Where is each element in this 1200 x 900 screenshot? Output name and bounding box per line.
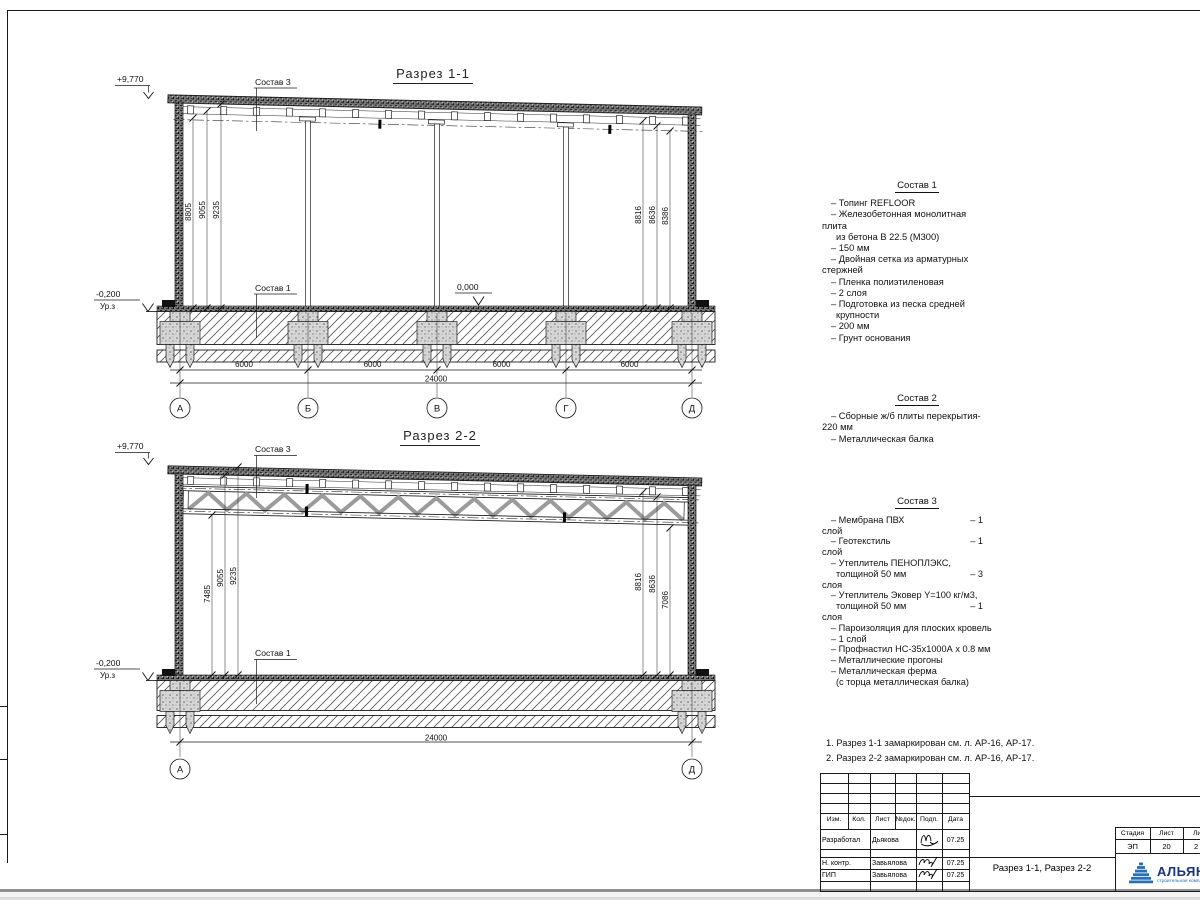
composition-2: Состав 2 – Сборные ж/б плиты перекрытия-…	[822, 393, 1018, 445]
drawing-sheet: 8805 9055 9235 8816 8636 8386 Состав 3 С…	[0, 0, 1200, 900]
composition-line: слоя	[822, 580, 1018, 591]
wall-right	[688, 485, 696, 675]
axis-label: А	[177, 765, 184, 776]
tb-doc-title: Разрез 1-1, Разрез 2-2	[969, 863, 1115, 874]
axis-label: Б	[305, 404, 311, 415]
composition-line: – Пленка полиэтиленовая	[822, 277, 1018, 288]
composition-line: стержней	[822, 265, 1018, 276]
alliance-logo-text: АЛЬЯНС	[1157, 864, 1200, 879]
tb-role: Н. контр.	[822, 860, 851, 867]
dim-label: 9235	[212, 201, 221, 219]
beam-splice-mark	[378, 120, 381, 129]
elevation-ground: -0,200	[96, 289, 121, 299]
tb-sheet-value: 20	[1150, 842, 1183, 851]
section-2-2-title: Разрез 2-2	[390, 428, 490, 443]
composition-line: крупности	[822, 310, 1018, 321]
elevation-zero: 0,000	[457, 282, 479, 292]
note-line: 2. Разрез 2-2 замаркирован см. л. АР-16,…	[826, 751, 1034, 766]
dim-total-label: 24000	[425, 734, 448, 743]
elevation-top: +9,770	[117, 441, 144, 451]
composition-3: Состав 3 – Мембрана ПВХ– 1слой– Геотекст…	[822, 497, 1018, 688]
dim-label: 8386	[661, 207, 670, 225]
composition-line: – Профнастил НС-35х1000А х 0.8 мм	[822, 644, 1018, 655]
column	[564, 127, 569, 307]
composition-line: – Металлическая балка	[822, 434, 1018, 445]
composition-line: (с торца металлическая балка)	[822, 677, 1018, 688]
composition-line: слой	[822, 547, 1018, 558]
elevation-ground: -0,200	[96, 658, 121, 668]
tb-header-list: Лист	[870, 816, 895, 823]
axis-label: Д	[689, 404, 696, 415]
elevation-top: +9,770	[117, 74, 144, 84]
signature	[917, 829, 942, 848]
composition-line: – Железобетонная монолитная	[822, 209, 1018, 220]
soil-band	[157, 716, 715, 728]
wall-base	[162, 300, 175, 307]
truss-splice-mark	[305, 506, 308, 516]
dim-label: 8816	[634, 206, 643, 224]
axis-markers: А Б В Г Д	[170, 398, 702, 418]
dim-label: 6000	[364, 360, 382, 369]
tb-header-data: Дата	[942, 816, 969, 823]
composition-line: – 200 мм	[822, 321, 1018, 332]
composition-line: – Подготовка из песка средней	[822, 299, 1018, 310]
axis-label: Г	[563, 404, 568, 415]
axis-label: А	[177, 404, 184, 415]
wall-base	[696, 669, 709, 676]
tb-name: Завьялова	[872, 860, 907, 867]
composition-1-lines: – Топинг REFLOOR– Железобетонная монолит…	[822, 198, 1018, 344]
wall-base	[162, 669, 175, 676]
composition-line: – Мембрана ПВХ– 1	[822, 515, 983, 526]
composition-line: – Утеплитель ПЕНОПЛЭКС,	[822, 558, 1018, 569]
axis-markers: А Д	[170, 759, 702, 779]
dim-label: 9055	[198, 201, 207, 219]
soil-band	[157, 681, 715, 711]
wall-left	[175, 102, 183, 308]
composition-line: – 1 слой	[822, 634, 1018, 645]
notes: 1. Разрез 1-1 замаркирован см. л. АР-16,…	[826, 736, 1034, 765]
wall-base	[696, 300, 709, 307]
sections-drawing: 8805 9055 9235 8816 8636 8386 Состав 3 С…	[0, 0, 1200, 900]
tb-header-ndok: №док.	[895, 816, 916, 823]
composition-line: – 150 мм	[822, 243, 1018, 254]
dim-total-label: 24000	[425, 375, 448, 384]
composition-line: из бетона В 22.5 (М300)	[822, 232, 1018, 243]
dim-label: 6000	[235, 360, 253, 369]
leader-floor-label: Состав 1	[255, 283, 291, 293]
wall-left	[175, 473, 183, 675]
composition-line: – Двойная сетка из арматурных	[822, 254, 1018, 265]
dim-label: 6000	[493, 360, 511, 369]
ground-label: Ур.з	[100, 671, 115, 680]
dim-label: 8636	[648, 575, 657, 593]
dim-label: 7086	[661, 591, 670, 609]
section-1-1-drawing: 8805 9055 9235 8816 8636 8386 Состав 3 С…	[94, 74, 715, 418]
truss-splice-mark	[563, 512, 566, 522]
composition-2-title: Состав 2	[822, 393, 1012, 404]
composition-line: – Утеплитель Эковер Y=100 кг/м3,	[822, 590, 1018, 601]
roof-assembly	[167, 466, 702, 526]
tb-name: Дьякова	[872, 837, 899, 844]
note-line: 1. Разрез 1-1 замаркирован см. л. АР-16,…	[826, 736, 1034, 751]
section-1-1-title: Разрез 1-1	[383, 66, 483, 81]
tb-date: 07.25	[942, 837, 969, 844]
tb-header-podp: Подп.	[916, 816, 942, 823]
dims-left: 8805 9055 9235	[184, 101, 225, 312]
tb-stage-value: ЭП	[1115, 842, 1150, 851]
dim-label: 8816	[634, 573, 643, 591]
composition-line: плита	[822, 221, 1018, 232]
roof-band	[168, 95, 702, 115]
composition-2-lines: – Сборные ж/б плиты перекрытия-220 мм– М…	[822, 411, 1018, 445]
dim-label: 7485	[203, 585, 212, 603]
roof-band	[168, 466, 702, 486]
dims-right: 8816 8636 8386	[634, 118, 674, 312]
tb-sheet-label: Лист	[1150, 830, 1183, 837]
composition-line: – Пароизоляция для плоских кровель	[822, 623, 1018, 634]
signature	[916, 867, 943, 880]
truss-splice-mark	[305, 484, 308, 494]
tb-sheets-value: 2	[1194, 842, 1198, 851]
tb-date: 07.25	[942, 872, 969, 879]
composition-line: – Металлические прогоны	[822, 655, 1018, 666]
axis-label: Д	[689, 765, 696, 776]
leader-roof-label: Состав 3	[255, 444, 291, 454]
tb-date: 07.25	[942, 860, 969, 867]
axis-label: В	[434, 404, 440, 415]
composition-line: – Топинг REFLOOR	[822, 198, 1018, 209]
composition-line: толщиной 50 мм– 1	[822, 601, 983, 612]
tb-header-kol: Кол.	[848, 816, 870, 823]
leader-floor-label: Состав 1	[255, 648, 291, 658]
composition-line: толщиной 50 мм– 3	[822, 569, 983, 580]
composition-line: – Металлическая ферма	[822, 666, 1018, 677]
dim-label: 8805	[184, 203, 193, 221]
composition-line: – Грунт основания	[822, 333, 1018, 344]
floor-slab	[157, 675, 715, 681]
composition-line: 220 мм	[822, 422, 1018, 433]
tb-sheets-label: Листов	[1184, 830, 1200, 837]
composition-line: – 2 слоя	[822, 288, 1018, 299]
section-2-2-drawing: 7485 9055 9235 8816 8636 7086 Состав 3 С…	[94, 441, 715, 779]
column	[306, 121, 311, 307]
tb-stage-label: Стадия	[1115, 830, 1150, 837]
composition-line: слой	[822, 526, 1018, 537]
dim-label: 9055	[216, 569, 225, 587]
floor-slab	[157, 306, 715, 312]
tb-header-izm: Изм.	[820, 816, 848, 823]
dim-label: 6000	[621, 360, 639, 369]
alliance-logo-tagline: строительная компания	[1157, 879, 1200, 884]
composition-line: – Геотекстиль– 1	[822, 536, 983, 547]
ground-label: Ур.з	[100, 302, 115, 311]
tb-role: ГИП	[822, 872, 836, 879]
beam-splice-mark	[608, 125, 611, 134]
tb-name: Завьялова	[872, 872, 907, 879]
leader-roof-label: Состав 3	[255, 77, 291, 87]
composition-line: слоя	[822, 612, 1018, 623]
dim-label: 9235	[229, 567, 238, 585]
composition-3-lines: – Мембрана ПВХ– 1слой– Геотекстиль– 1сло…	[822, 515, 1018, 688]
wall-right	[688, 114, 696, 308]
dim-label: 8636	[648, 206, 657, 224]
composition-1: Состав 1 – Топинг REFLOOR– Железобетонна…	[822, 180, 1018, 344]
tb-role: Разработал	[822, 837, 860, 844]
composition-3-title: Состав 3	[822, 497, 1012, 508]
composition-line: – Сборные ж/б плиты перекрытия-	[822, 411, 1018, 422]
alliance-logo-icon	[1128, 862, 1154, 885]
composition-1-title: Состав 1	[822, 180, 1012, 191]
column	[435, 124, 440, 307]
